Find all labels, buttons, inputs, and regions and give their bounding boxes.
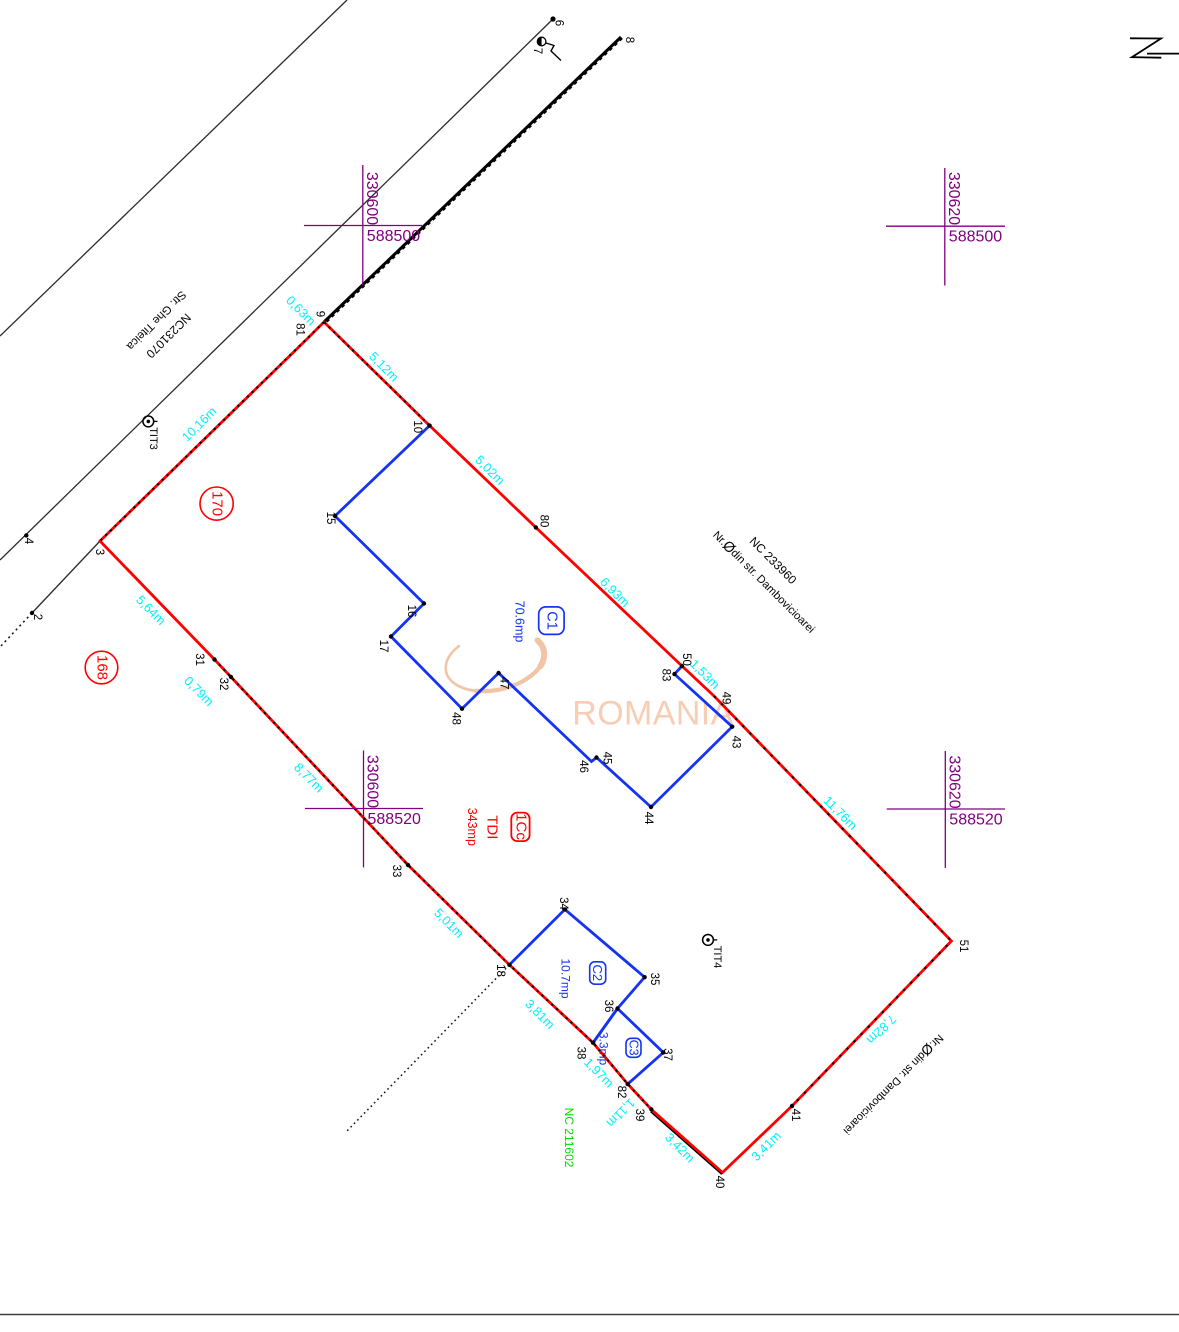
svg-text:3,81m: 3,81m (522, 996, 558, 1032)
svg-text:7: 7 (531, 48, 543, 54)
svg-text:330600: 330600 (364, 755, 381, 808)
svg-text:1Cc: 1Cc (512, 813, 529, 840)
svg-text:588520: 588520 (949, 812, 1002, 829)
svg-text:33: 33 (390, 865, 402, 878)
svg-text:47: 47 (498, 677, 510, 690)
svg-text:170: 170 (209, 491, 226, 516)
svg-text:15: 15 (324, 512, 336, 525)
svg-text:38: 38 (575, 1047, 587, 1060)
svg-text:TIT4: TIT4 (711, 946, 723, 969)
svg-text:8,77m: 8,77m (291, 760, 327, 796)
svg-text:82: 82 (615, 1086, 627, 1099)
svg-text:330600: 330600 (363, 172, 380, 225)
svg-text:31: 31 (193, 653, 205, 666)
svg-text:81: 81 (294, 323, 306, 336)
svg-text:18: 18 (494, 964, 506, 977)
svg-text:0,79m: 0,79m (181, 673, 217, 709)
svg-text:Nr.Ødin str. Dambovicioarei: Nr.Ødin str. Dambovicioarei (839, 1030, 947, 1138)
svg-text:8: 8 (623, 37, 635, 43)
svg-text:80: 80 (538, 515, 550, 528)
svg-text:330620: 330620 (945, 172, 962, 225)
svg-text:83: 83 (660, 669, 672, 682)
svg-text:36: 36 (602, 1000, 614, 1013)
svg-text:70.6mp: 70.6mp (513, 601, 527, 643)
svg-text:343mp: 343mp (465, 808, 479, 846)
svg-text:16: 16 (405, 605, 417, 618)
svg-text:TIT3: TIT3 (147, 427, 159, 450)
svg-text:168: 168 (94, 655, 111, 680)
svg-text:7,82m: 7,82m (864, 1012, 900, 1048)
svg-text:37: 37 (661, 1048, 673, 1061)
svg-text:C3: C3 (627, 1040, 641, 1056)
svg-text:5,01m: 5,01m (431, 905, 467, 941)
svg-text:34: 34 (557, 897, 569, 910)
svg-text:49: 49 (720, 692, 732, 705)
svg-text:41: 41 (789, 1109, 801, 1122)
svg-text:43: 43 (730, 736, 742, 749)
svg-text:40: 40 (713, 1176, 725, 1189)
svg-text:3,41m: 3,41m (748, 1128, 784, 1164)
svg-text:588500: 588500 (367, 228, 420, 245)
svg-text:48: 48 (450, 712, 462, 725)
svg-text:10: 10 (411, 420, 423, 433)
svg-text:6: 6 (553, 20, 565, 26)
svg-text:10,16m: 10,16m (179, 404, 220, 445)
svg-text:5,64m: 5,64m (133, 592, 169, 628)
svg-text:588500: 588500 (949, 229, 1002, 246)
svg-text:10.7mp: 10.7mp (559, 958, 573, 998)
svg-text:17: 17 (377, 640, 389, 653)
svg-text:4: 4 (22, 538, 34, 545)
svg-text:588520: 588520 (368, 811, 421, 828)
svg-text:330620: 330620 (945, 755, 962, 808)
svg-text:TDI: TDI (484, 815, 501, 839)
svg-text:2: 2 (31, 614, 43, 620)
svg-text:3: 3 (93, 549, 105, 555)
svg-text:44: 44 (642, 812, 654, 825)
svg-text:46: 46 (577, 760, 589, 773)
svg-text:C1: C1 (544, 611, 560, 630)
svg-text:35: 35 (648, 973, 660, 986)
svg-text:C2: C2 (590, 964, 605, 981)
svg-text:ROMANIA: ROMANIA (572, 695, 733, 733)
svg-text:51: 51 (957, 940, 969, 953)
svg-text:32: 32 (217, 678, 229, 691)
svg-text:45: 45 (601, 752, 613, 765)
svg-text:NC 211602: NC 211602 (562, 1108, 576, 1168)
